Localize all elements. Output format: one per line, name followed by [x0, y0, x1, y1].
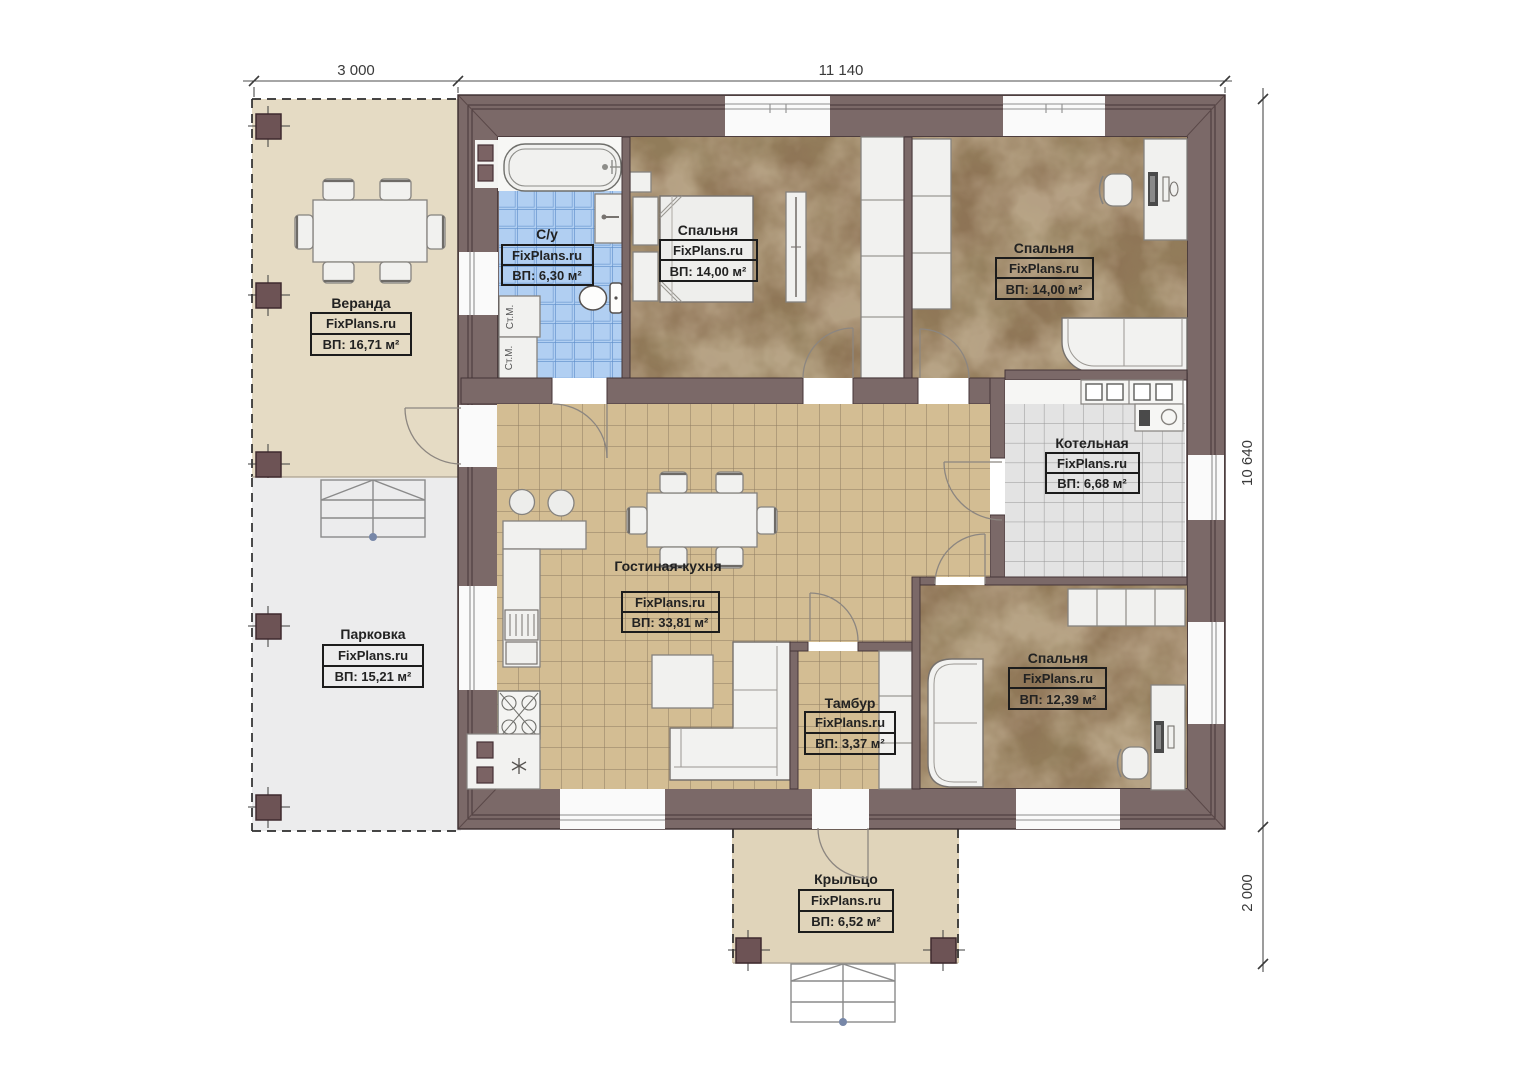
svg-text:Спальня: Спальня	[1014, 240, 1074, 256]
svg-text:ВП: 16,71 м²: ВП: 16,71 м²	[323, 337, 400, 352]
svg-text:Гостиная-кухня: Гостиная-кухня	[614, 558, 721, 574]
svg-text:2 000: 2 000	[1239, 874, 1256, 912]
svg-text:FixPlans.ru: FixPlans.ru	[673, 243, 743, 258]
svg-text:ВП: 15,21 м²: ВП: 15,21 м²	[335, 669, 412, 684]
svg-text:С/у: С/у	[536, 226, 558, 242]
svg-text:Парковка: Парковка	[340, 626, 405, 642]
svg-text:FixPlans.ru: FixPlans.ru	[1023, 671, 1093, 686]
svg-text:11 140: 11 140	[819, 62, 864, 79]
svg-text:FixPlans.ru: FixPlans.ru	[512, 248, 582, 263]
svg-text:ВП: 6,68 м²: ВП: 6,68 м²	[1057, 476, 1127, 491]
svg-text:Спальня: Спальня	[1028, 650, 1088, 666]
svg-text:FixPlans.ru: FixPlans.ru	[326, 316, 396, 331]
svg-text:Ст.М.: Ст.М.	[505, 305, 516, 330]
svg-text:FixPlans.ru: FixPlans.ru	[1009, 261, 1079, 276]
svg-text:Веранда: Веранда	[331, 295, 391, 311]
svg-text:Тамбур: Тамбур	[825, 695, 876, 711]
svg-text:FixPlans.ru: FixPlans.ru	[815, 715, 885, 730]
svg-text:10 640: 10 640	[1239, 440, 1256, 486]
svg-text:FixPlans.ru: FixPlans.ru	[811, 893, 881, 908]
svg-text:FixPlans.ru: FixPlans.ru	[635, 595, 705, 610]
svg-text:ВП: 3,37 м²: ВП: 3,37 м²	[815, 736, 885, 751]
svg-text:ВП: 6,52 м²: ВП: 6,52 м²	[811, 914, 881, 929]
svg-text:ВП: 33,81 м²: ВП: 33,81 м²	[632, 615, 709, 630]
svg-text:FixPlans.ru: FixPlans.ru	[1057, 456, 1127, 471]
svg-text:ВП: 14,00 м²: ВП: 14,00 м²	[1006, 282, 1083, 297]
svg-text:Спальня: Спальня	[678, 222, 738, 238]
svg-text:Ст.М.: Ст.М.	[504, 346, 515, 371]
svg-text:ВП: 6,30 м²: ВП: 6,30 м²	[512, 268, 582, 283]
svg-text:3 000: 3 000	[337, 62, 375, 79]
svg-text:Котельная: Котельная	[1055, 435, 1128, 451]
svg-text:ВП: 14,00 м²: ВП: 14,00 м²	[670, 264, 747, 279]
svg-text:ВП: 12,39 м²: ВП: 12,39 м²	[1020, 692, 1097, 707]
svg-text:FixPlans.ru: FixPlans.ru	[338, 648, 408, 663]
